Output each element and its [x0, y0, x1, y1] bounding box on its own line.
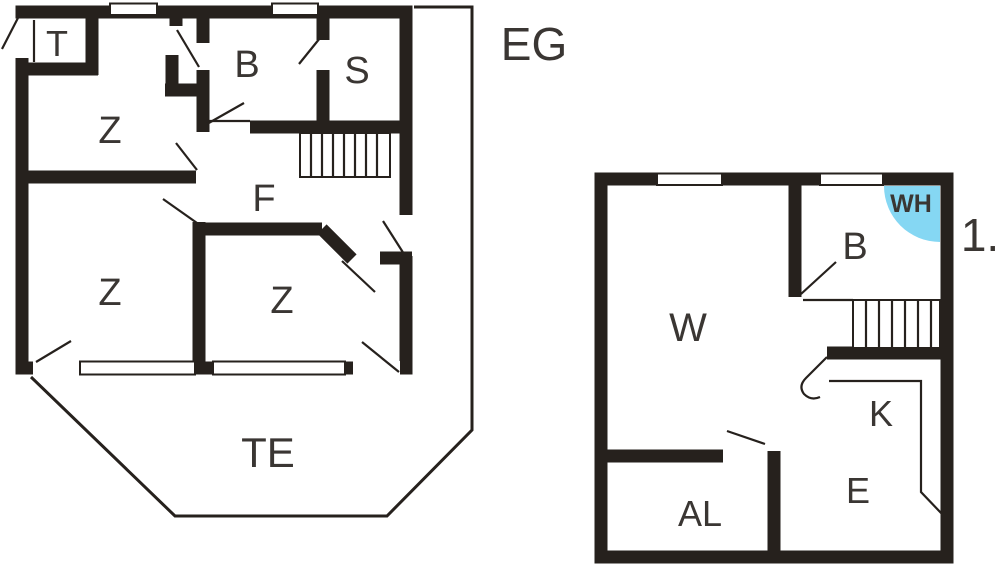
window [110, 4, 157, 16]
room-label-k: K [869, 393, 893, 434]
room-label-e: E [846, 470, 870, 511]
og-door-swings [727, 262, 836, 444]
door-swing [801, 262, 836, 294]
room-label-z2: Z [98, 272, 121, 314]
window [820, 174, 883, 186]
floorplan-og: W B WH K E AL 1. [595, 174, 1000, 564]
floor-label-eg: EG [501, 18, 567, 70]
understair-door [801, 357, 827, 398]
door-swing [177, 30, 199, 67]
floorplan-drawing: T Z B S F Z Z TE EG [0, 0, 1000, 567]
door-swing [727, 431, 765, 444]
window [80, 362, 195, 375]
room-label-wh: WH [890, 190, 932, 218]
door-opening [316, 40, 330, 70]
og-thin-partitions [801, 357, 942, 514]
eg-staircase [300, 133, 390, 177]
room-label-z1: Z [98, 110, 121, 152]
floorplan-eg: T Z B S F Z Z TE EG [2, 4, 567, 517]
door-swing [176, 143, 197, 170]
room-label-t: T [46, 23, 68, 64]
door-swing [163, 199, 197, 223]
room-label-b2: B [842, 226, 867, 268]
room-label-te: TE [241, 429, 295, 476]
door-swing [383, 221, 404, 254]
og-staircase [853, 300, 940, 348]
room-label-b: B [234, 44, 259, 86]
window [657, 174, 722, 186]
floor-label-og: 1. [961, 209, 999, 261]
wall [322, 229, 352, 259]
og-interior-walls [595, 185, 946, 557]
door-swing [36, 341, 71, 362]
door-opening [33, 361, 80, 375]
room-label-s: S [344, 50, 369, 92]
floorplan-canvas: T Z B S F Z Z TE EG [0, 0, 1000, 567]
room-label-w: W [669, 306, 707, 350]
room-label-al: AL [678, 493, 722, 534]
room-label-z3: Z [270, 280, 293, 322]
window [272, 4, 318, 16]
room-label-f: F [252, 178, 275, 220]
window [213, 362, 345, 375]
door-swing [342, 261, 375, 292]
door-swing [2, 14, 20, 49]
